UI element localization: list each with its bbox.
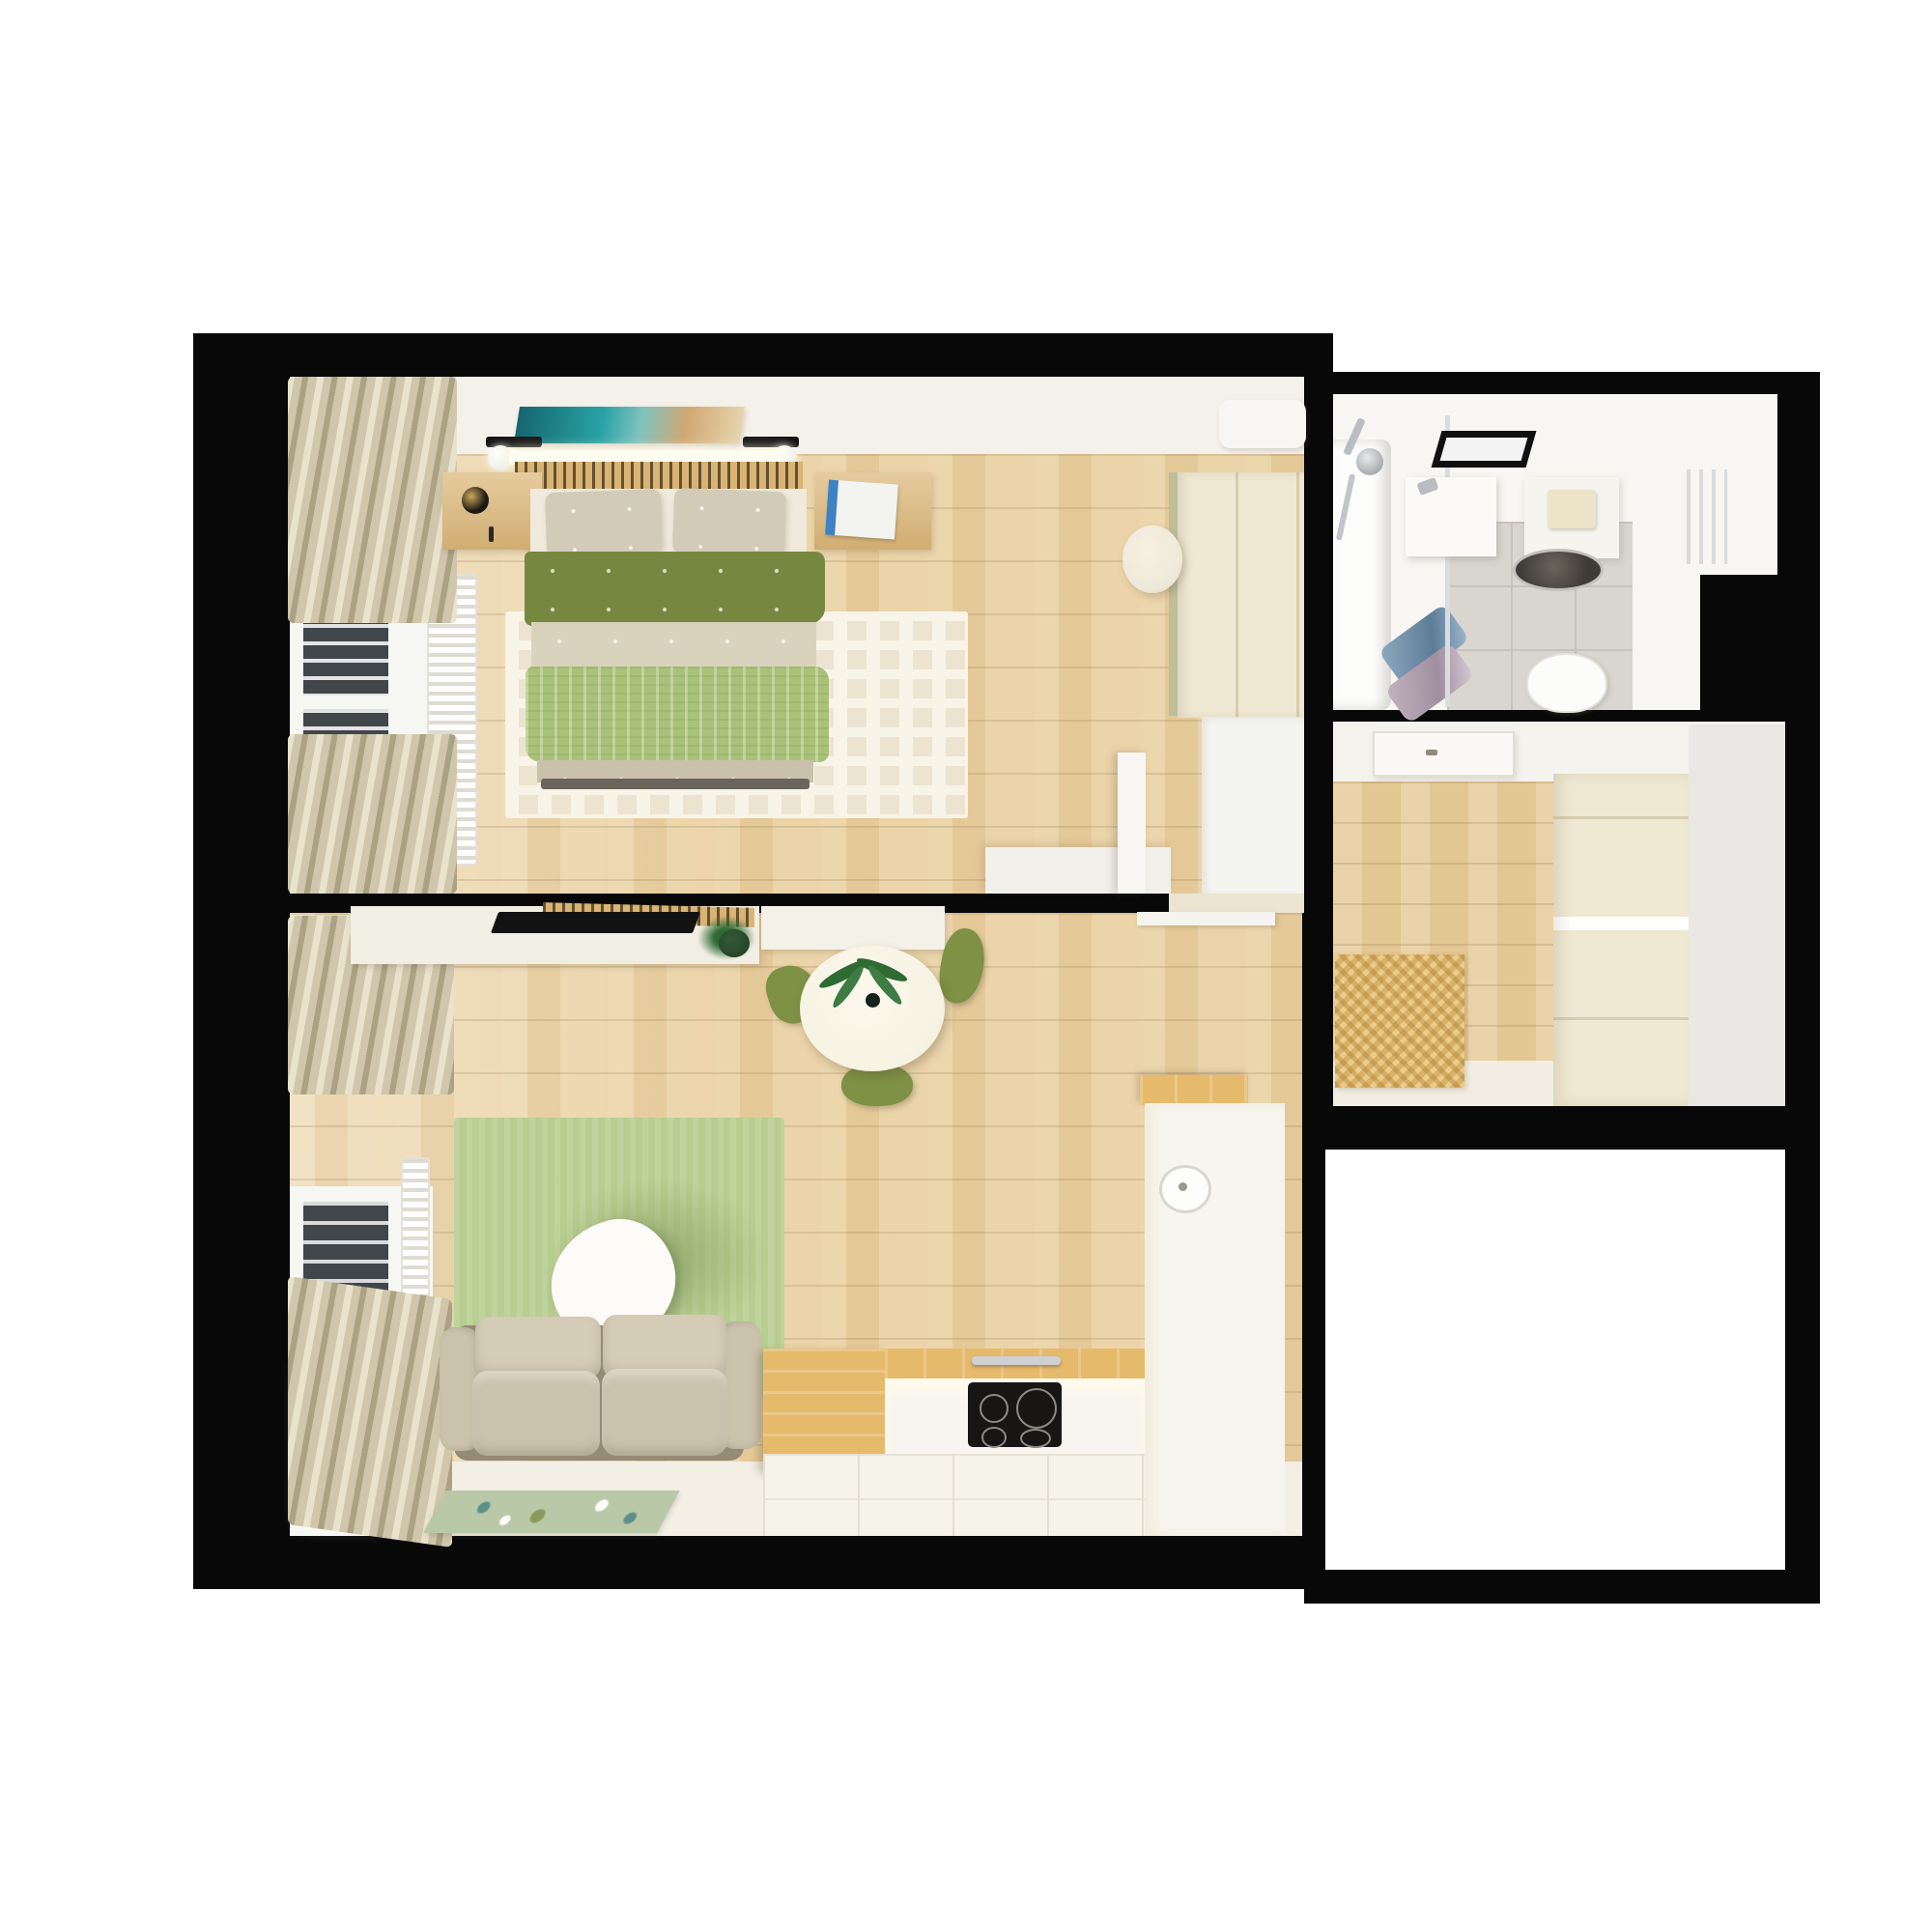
console-plant-pot xyxy=(719,929,750,957)
bed-frame-end xyxy=(541,779,810,789)
magazine xyxy=(825,480,898,540)
tv-screen xyxy=(491,912,700,933)
bed-headboard-slats xyxy=(515,462,803,492)
towel-radiator xyxy=(1687,469,1727,564)
shower-head xyxy=(1356,448,1383,475)
bedroom-curtain-bottom xyxy=(288,734,457,894)
bathroom-duct-notch xyxy=(1700,575,1777,710)
bedroom-artwork xyxy=(514,407,745,443)
bed-pillow-right xyxy=(672,488,786,557)
toilet xyxy=(1526,653,1607,713)
bedroom-pouf xyxy=(1122,526,1182,593)
floor-plan-canvas xyxy=(0,0,1932,1932)
sofa-seat-cushion-right xyxy=(602,1369,727,1456)
kitchen-peninsula-counter xyxy=(763,1349,885,1470)
cooktop-ring-small xyxy=(980,1394,1009,1423)
tissue-box xyxy=(1548,490,1596,528)
cooktop-ring-large xyxy=(1016,1388,1057,1429)
kitchen-right-counter-wood xyxy=(1140,1075,1248,1105)
bathroom-mirror xyxy=(1432,431,1537,468)
wall-lamp-right xyxy=(743,437,799,447)
bedroom-wardrobe-white xyxy=(1202,717,1304,895)
bedroom-curtain-top xyxy=(288,377,457,623)
kitchen-tile-floor xyxy=(763,1454,1147,1536)
kitchen-sink-drain xyxy=(1179,1182,1187,1191)
kitchen-right-counter-run xyxy=(1145,1103,1285,1536)
air-conditioner xyxy=(1219,400,1306,448)
sofa-back-cushion-left xyxy=(475,1317,601,1378)
wardrobe-green-edge xyxy=(1169,472,1178,716)
bed-duvet-green xyxy=(525,552,825,626)
laptop xyxy=(573,1250,629,1301)
living-floor-mat xyxy=(423,1491,679,1533)
countertop-basin xyxy=(1513,549,1604,591)
nightstand-lamp xyxy=(462,487,489,514)
bedroom-door-leaf xyxy=(1118,753,1146,894)
kitchen-shelf-strip xyxy=(1137,912,1275,925)
bed-pillow-left xyxy=(545,489,663,556)
living-curtain-bottom xyxy=(288,1276,452,1548)
empty-room-floor xyxy=(1325,1150,1785,1570)
cooktop-ring-bottom-right xyxy=(1020,1429,1051,1448)
bed-quilt-beige xyxy=(531,622,816,670)
bedroom-wardrobe-cream xyxy=(1178,472,1304,718)
bathtub xyxy=(1333,440,1391,710)
bed-throw-green xyxy=(526,667,829,762)
palm-vase xyxy=(866,993,880,1008)
sideboard xyxy=(761,906,945,950)
sofa-seat-cushion-left xyxy=(472,1371,600,1456)
nightstand-left-knobs xyxy=(489,526,494,542)
cooktop-ring-bottom-left xyxy=(981,1427,1007,1448)
hallway-wardrobe xyxy=(1553,774,1689,1106)
bedroom-doorway-floor xyxy=(1169,894,1304,913)
hallway-wall-strip xyxy=(1689,724,1785,1106)
entrance-door-handle xyxy=(1426,750,1437,755)
entrance-door xyxy=(1373,731,1515,777)
oven-handle xyxy=(972,1356,1061,1365)
hallway-doormat xyxy=(1335,954,1464,1088)
